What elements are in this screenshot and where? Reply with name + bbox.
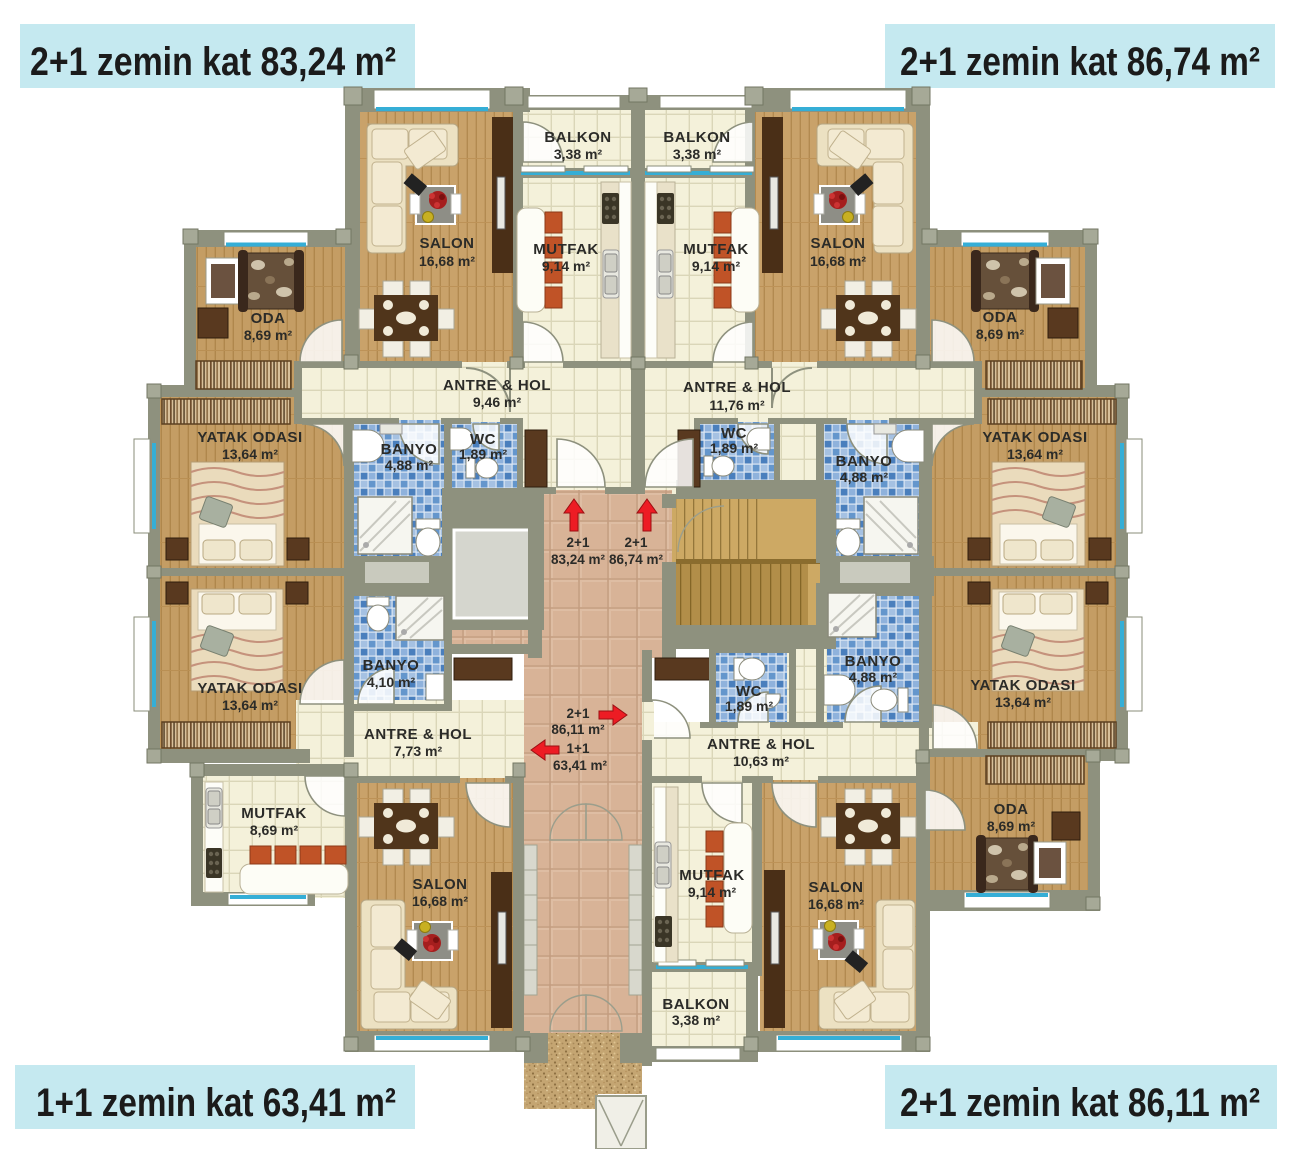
- svg-text:BANYO: BANYO: [845, 653, 902, 670]
- svg-text:4,88 m²: 4,88 m²: [840, 469, 889, 485]
- svg-text:BANYO: BANYO: [363, 657, 420, 674]
- svg-text:1,89 m²: 1,89 m²: [725, 698, 774, 714]
- svg-text:1+1 zemin kat 63,41 m²: 1+1 zemin kat 63,41 m²: [36, 1081, 396, 1125]
- svg-text:MUTFAK: MUTFAK: [679, 867, 745, 884]
- svg-text:2+1: 2+1: [567, 535, 590, 550]
- svg-text:8,69 m²: 8,69 m²: [987, 818, 1036, 834]
- svg-text:7,73 m²: 7,73 m²: [394, 743, 443, 759]
- svg-text:ANTRE & HOL: ANTRE & HOL: [707, 736, 815, 753]
- svg-text:4,10 m²: 4,10 m²: [367, 674, 416, 690]
- svg-text:ANTRE & HOL: ANTRE & HOL: [683, 379, 791, 396]
- svg-text:3,38 m²: 3,38 m²: [672, 1012, 721, 1028]
- svg-text:16,68 m²: 16,68 m²: [419, 253, 475, 269]
- svg-text:SALON: SALON: [413, 876, 468, 893]
- svg-text:YATAK ODASI: YATAK ODASI: [197, 429, 302, 446]
- svg-text:BANYO: BANYO: [836, 453, 893, 470]
- svg-text:83,24 m²: 83,24 m²: [551, 552, 606, 567]
- svg-text:9,14 m²: 9,14 m²: [542, 258, 591, 274]
- svg-text:1,89 m²: 1,89 m²: [710, 440, 759, 456]
- svg-text:ANTRE & HOL: ANTRE & HOL: [443, 377, 551, 394]
- svg-text:9,46 m²: 9,46 m²: [473, 394, 522, 410]
- svg-text:13,64 m²: 13,64 m²: [222, 697, 278, 713]
- svg-text:ANTRE & HOL: ANTRE & HOL: [364, 726, 472, 743]
- svg-text:1+1: 1+1: [567, 741, 590, 756]
- svg-text:BANYO: BANYO: [381, 441, 438, 458]
- svg-text:SALON: SALON: [811, 235, 866, 252]
- svg-text:10,63 m²: 10,63 m²: [733, 753, 789, 769]
- svg-text:2+1 zemin kat 86,74 m²: 2+1 zemin kat 86,74 m²: [900, 40, 1260, 84]
- svg-text:3,38 m²: 3,38 m²: [554, 146, 603, 162]
- svg-text:SALON: SALON: [809, 879, 864, 896]
- svg-text:8,69 m²: 8,69 m²: [976, 326, 1025, 342]
- svg-text:2+1 zemin kat 86,11 m²: 2+1 zemin kat 86,11 m²: [900, 1081, 1260, 1125]
- svg-text:2+1: 2+1: [625, 535, 648, 550]
- svg-text:MUTFAK: MUTFAK: [683, 241, 749, 258]
- svg-text:4,88 m²: 4,88 m²: [849, 669, 898, 685]
- svg-text:4,88 m²: 4,88 m²: [385, 457, 434, 473]
- svg-text:16,68 m²: 16,68 m²: [412, 893, 468, 909]
- svg-text:9,14 m²: 9,14 m²: [692, 258, 741, 274]
- svg-text:BALKON: BALKON: [662, 996, 729, 1013]
- svg-text:YATAK ODASI: YATAK ODASI: [970, 677, 1075, 694]
- svg-text:9,14 m²: 9,14 m²: [688, 884, 737, 900]
- svg-text:63,41 m²: 63,41 m²: [553, 758, 608, 773]
- svg-text:MUTFAK: MUTFAK: [533, 241, 599, 258]
- svg-text:YATAK ODASI: YATAK ODASI: [197, 680, 302, 697]
- svg-text:2+1: 2+1: [567, 706, 590, 721]
- svg-text:13,64 m²: 13,64 m²: [1007, 446, 1063, 462]
- svg-text:BALKON: BALKON: [544, 129, 611, 146]
- svg-text:16,68 m²: 16,68 m²: [808, 896, 864, 912]
- svg-text:8,69 m²: 8,69 m²: [244, 327, 293, 343]
- svg-text:1,89 m²: 1,89 m²: [459, 446, 508, 462]
- svg-text:3,38 m²: 3,38 m²: [673, 146, 722, 162]
- svg-text:13,64 m²: 13,64 m²: [222, 446, 278, 462]
- svg-text:16,68 m²: 16,68 m²: [810, 253, 866, 269]
- svg-text:13,64 m²: 13,64 m²: [995, 694, 1051, 710]
- svg-text:ODA: ODA: [251, 310, 286, 327]
- svg-text:86,74 m²: 86,74 m²: [609, 552, 664, 567]
- svg-text:86,11 m²: 86,11 m²: [551, 722, 605, 737]
- svg-text:SALON: SALON: [420, 235, 475, 252]
- svg-text:8,69 m²: 8,69 m²: [250, 822, 299, 838]
- svg-text:BALKON: BALKON: [663, 129, 730, 146]
- svg-text:MUTFAK: MUTFAK: [241, 805, 307, 822]
- svg-text:YATAK ODASI: YATAK ODASI: [982, 429, 1087, 446]
- svg-text:ODA: ODA: [994, 801, 1029, 818]
- svg-text:11,76 m²: 11,76 m²: [709, 397, 765, 413]
- svg-text:ODA: ODA: [983, 309, 1018, 326]
- svg-text:2+1 zemin kat 83,24 m²: 2+1 zemin kat 83,24 m²: [30, 40, 396, 84]
